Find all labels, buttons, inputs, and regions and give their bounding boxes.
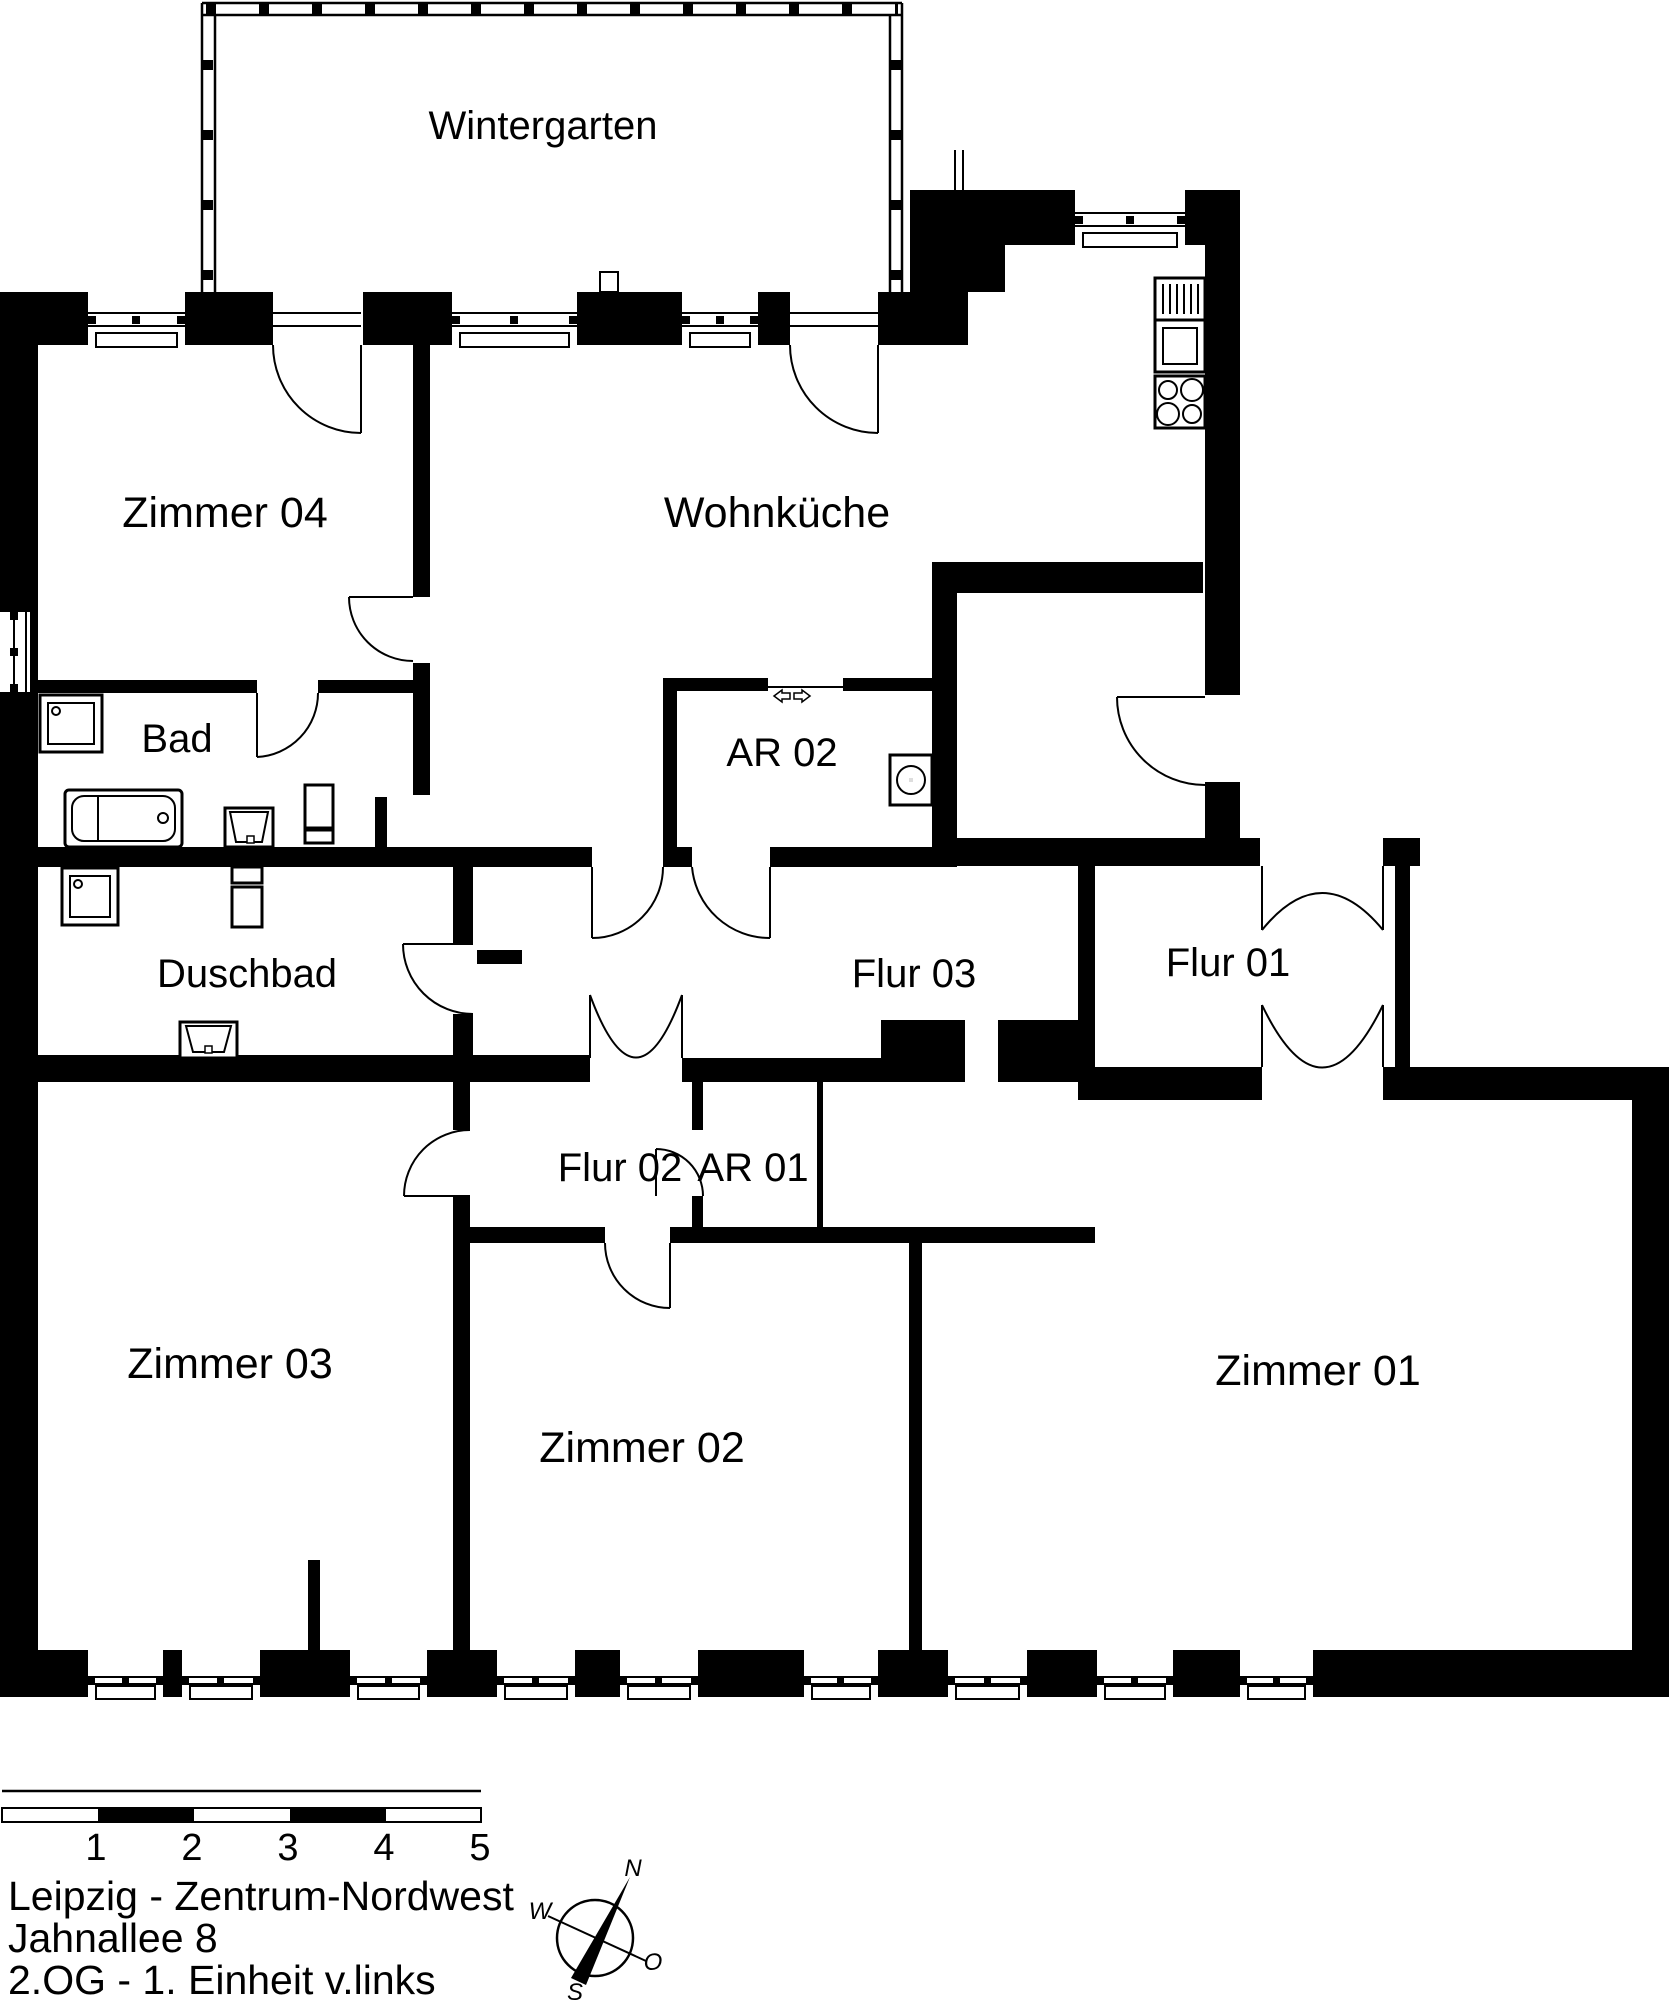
window-zimmer04 bbox=[88, 296, 185, 347]
label-bad: Bad bbox=[141, 717, 212, 761]
label-ar01: AR 01 bbox=[697, 1146, 808, 1190]
window-bad-left bbox=[0, 612, 30, 692]
scale-tick-3: 3 bbox=[277, 1827, 298, 1869]
door-closet bbox=[1117, 697, 1205, 785]
compass-south: S bbox=[567, 1979, 583, 2000]
washbasin-bad-corner-icon bbox=[40, 695, 102, 752]
label-flur03: Flur 03 bbox=[852, 952, 977, 996]
bathtub-icon bbox=[65, 790, 182, 847]
door-zimmer02 bbox=[605, 1243, 670, 1308]
shower-tray-icon bbox=[180, 1022, 237, 1058]
address-line-3: 2.OG - 1. Einheit v.links bbox=[8, 1957, 436, 2000]
arrow-right-icon bbox=[794, 690, 810, 702]
address-line-1: Leipzig - Zentrum-Nordwest bbox=[8, 1873, 514, 1919]
door-duschbad bbox=[403, 944, 473, 1014]
scale-tick-4: 4 bbox=[373, 1827, 394, 1869]
window-kitchen-niche bbox=[1075, 196, 1185, 247]
door-flur03-west bbox=[592, 867, 663, 938]
compass-north: N bbox=[624, 1855, 642, 1882]
label-flur01: Flur 01 bbox=[1166, 941, 1291, 985]
compass-west: W bbox=[529, 1898, 554, 1925]
scale-tick-1: 1 bbox=[85, 1827, 106, 1869]
address-line-2: Jahnallee 8 bbox=[8, 1915, 218, 1961]
scale-tick-5: 5 bbox=[469, 1827, 490, 1869]
fixtures bbox=[40, 278, 1205, 1058]
double-door-flur02 bbox=[590, 995, 682, 1058]
door-zimmer04-wohnkueche bbox=[349, 597, 413, 661]
walls bbox=[0, 190, 1669, 1697]
washing-machine-icon bbox=[890, 755, 932, 805]
label-ar02: AR 02 bbox=[726, 731, 837, 775]
double-door-zimmer01 bbox=[1262, 1005, 1383, 1068]
toilet-icon bbox=[305, 785, 333, 843]
floorplan-page: Wintergarten Zimmer 04 Wohnküche Bad AR … bbox=[0, 0, 1669, 2000]
arrow-left-icon bbox=[774, 690, 790, 702]
label-flur02: Flur 02 bbox=[558, 1146, 683, 1190]
scale-tick-2: 2 bbox=[181, 1827, 202, 1869]
compass-icon: N W O S bbox=[529, 1855, 663, 2000]
double-door-flur01-top bbox=[1262, 866, 1383, 930]
label-wintergarten: Wintergarten bbox=[429, 104, 658, 148]
wc-duschbad-icon bbox=[232, 867, 262, 927]
door-bad bbox=[257, 693, 318, 757]
label-zimmer04: Zimmer 04 bbox=[122, 489, 327, 537]
address-block: Leipzig - Zentrum-Nordwest Jahnallee 8 2… bbox=[8, 1873, 514, 2000]
sliding-door-ar02 bbox=[768, 687, 843, 702]
label-wohnkueche: Wohnküche bbox=[664, 489, 890, 537]
door-zimmer04-wintergarten bbox=[273, 313, 361, 433]
washbasin-duschbad-corner-icon bbox=[62, 868, 118, 925]
washbasin-bad-icon bbox=[225, 808, 273, 847]
floorplan-drawing: Wintergarten Zimmer 04 Wohnküche Bad AR … bbox=[0, 0, 1669, 2000]
stove-oven-icon bbox=[1155, 278, 1205, 428]
label-duschbad: Duschbad bbox=[157, 952, 337, 996]
door-wohnkueche-wintergarten bbox=[790, 313, 878, 433]
chimney-notch bbox=[600, 272, 618, 292]
windows bbox=[0, 196, 1313, 1699]
door-zimmer03 bbox=[404, 1130, 470, 1196]
window-wohnkueche-1 bbox=[452, 296, 577, 347]
label-zimmer02: Zimmer 02 bbox=[539, 1424, 744, 1472]
window-wohnkueche-2 bbox=[682, 296, 758, 347]
compass-east: O bbox=[644, 1949, 663, 1976]
label-zimmer01: Zimmer 01 bbox=[1215, 1347, 1420, 1395]
scale-bar: 1 2 3 4 5 bbox=[2, 1791, 491, 1869]
label-zimmer03: Zimmer 03 bbox=[127, 1340, 332, 1388]
door-flur03-ar02 bbox=[692, 867, 770, 938]
